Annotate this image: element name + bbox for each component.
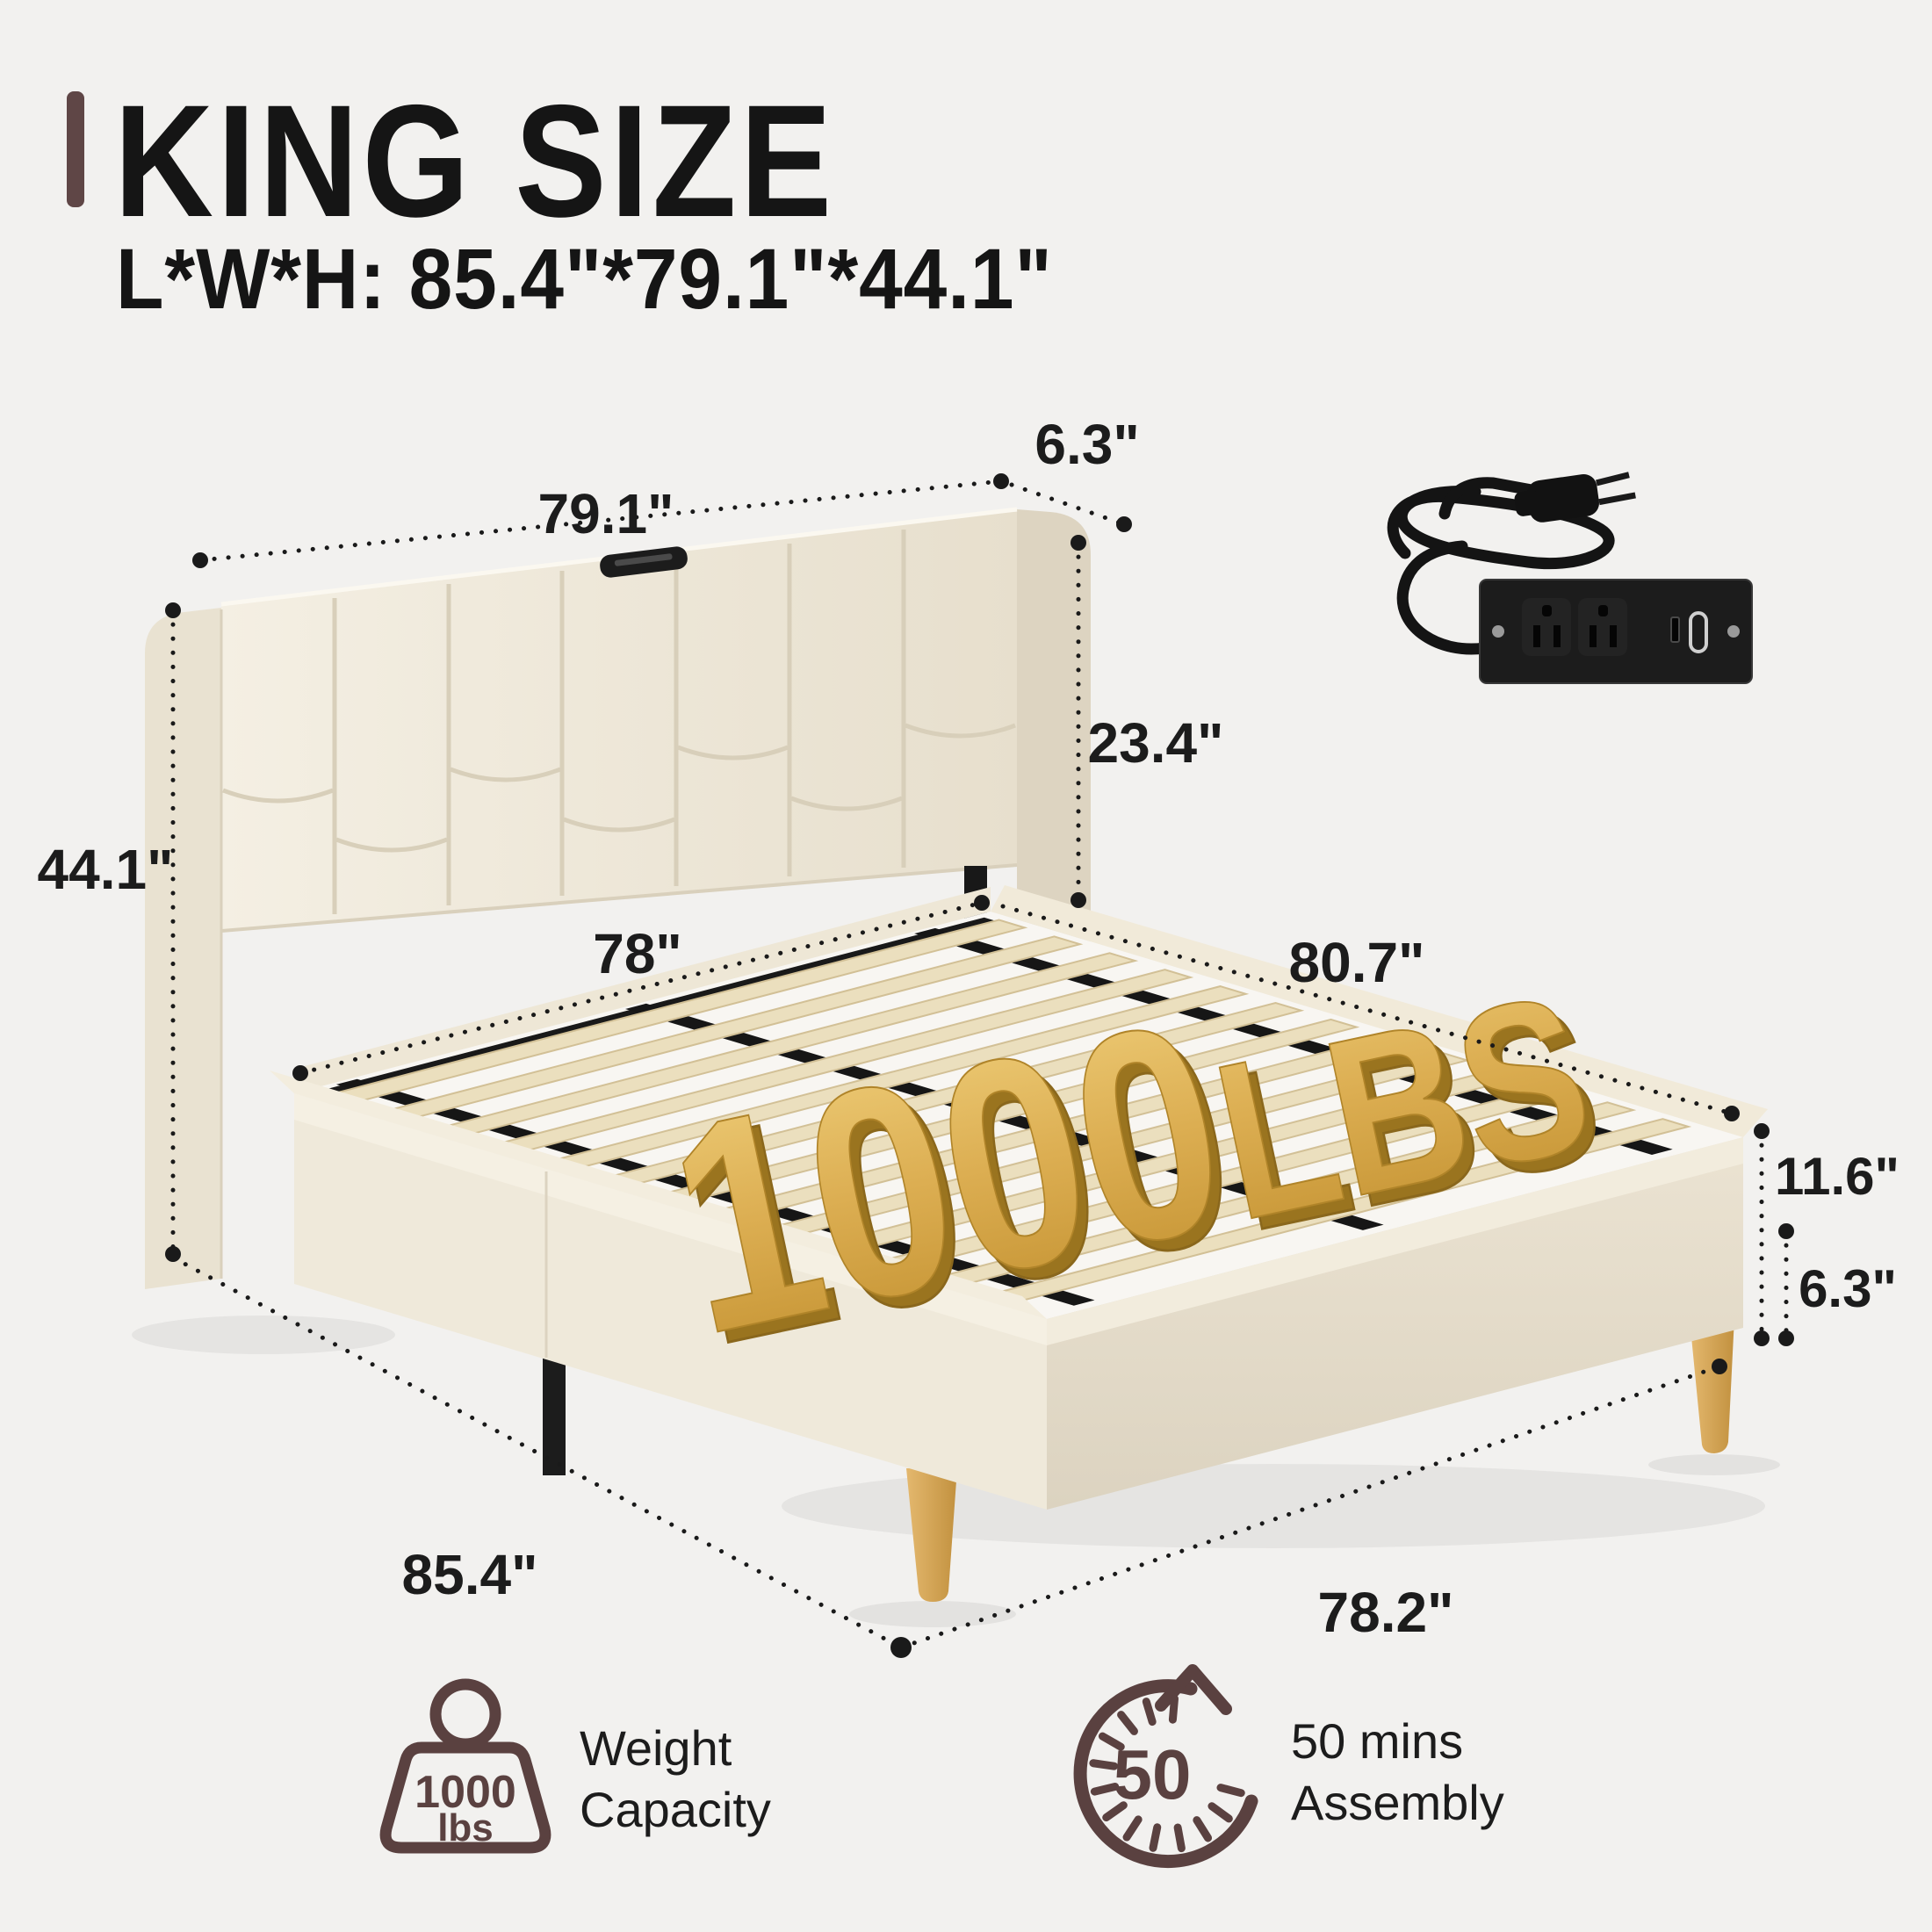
infographic-canvas: KING SIZE L*W*H: 85.4"*79.1"*44.1" [0,0,1932,1932]
charging-station [1393,467,1752,683]
feature-weight-capacity: 1000 lbs Weight Capacity [386,1684,771,1849]
timer-tick [1178,1827,1181,1849]
weight-icon: 1000 lbs [386,1684,545,1849]
svg-text:85.4": 85.4" [402,1543,538,1606]
svg-text:50: 50 [1114,1735,1192,1813]
timer-tick [1172,1698,1174,1719]
outlet-box [1480,580,1752,683]
power-plug-icon [1512,467,1637,526]
headboard-left-wing [145,608,221,1289]
timer-tick [1221,1788,1241,1793]
ac-outlet-2 [1578,598,1627,656]
svg-text:80.7": 80.7" [1289,931,1425,994]
svg-text:Capacity: Capacity [580,1782,771,1837]
usb-a-port [1671,617,1679,642]
svg-text:Weight: Weight [580,1720,732,1776]
svg-text:Assembly: Assembly [1291,1775,1504,1830]
svg-text:11.6": 11.6" [1775,1147,1900,1206]
dim-leg-height: 6.3" [1778,1223,1897,1346]
timer-tick [1197,1820,1208,1838]
bed-diagram: 1000LBS 1000LBS [0,0,1932,1932]
timer-tick [1094,1786,1114,1791]
wood-leg-front-left [906,1468,957,1602]
timer-icon: 50 [1080,1670,1251,1862]
dim-headboard-height: 23.4" [1071,535,1223,908]
timer-tick [1146,1702,1152,1722]
timer-tick [1153,1827,1157,1849]
svg-text:23.4": 23.4" [1088,711,1224,775]
timer-tick [1093,1763,1114,1766]
feature-assembly-time: 50 50 mins Assembly [1080,1670,1504,1862]
svg-text:6.3": 6.3" [1799,1259,1897,1318]
svg-text:lbs: lbs [437,1806,494,1849]
svg-text:79.1": 79.1" [538,482,674,545]
svg-text:6.3": 6.3" [1034,413,1139,476]
svg-text:78": 78" [593,922,682,985]
svg-text:50 mins: 50 mins [1291,1713,1463,1769]
timer-tick [1127,1820,1138,1837]
screw-right [1727,625,1740,638]
timer-tick [1212,1806,1229,1819]
timer-tick [1121,1715,1135,1732]
svg-text:78.2": 78.2" [1318,1581,1454,1644]
screw-left [1492,625,1504,638]
ac-outlet-1 [1522,598,1571,656]
svg-text:44.1": 44.1" [38,838,174,901]
